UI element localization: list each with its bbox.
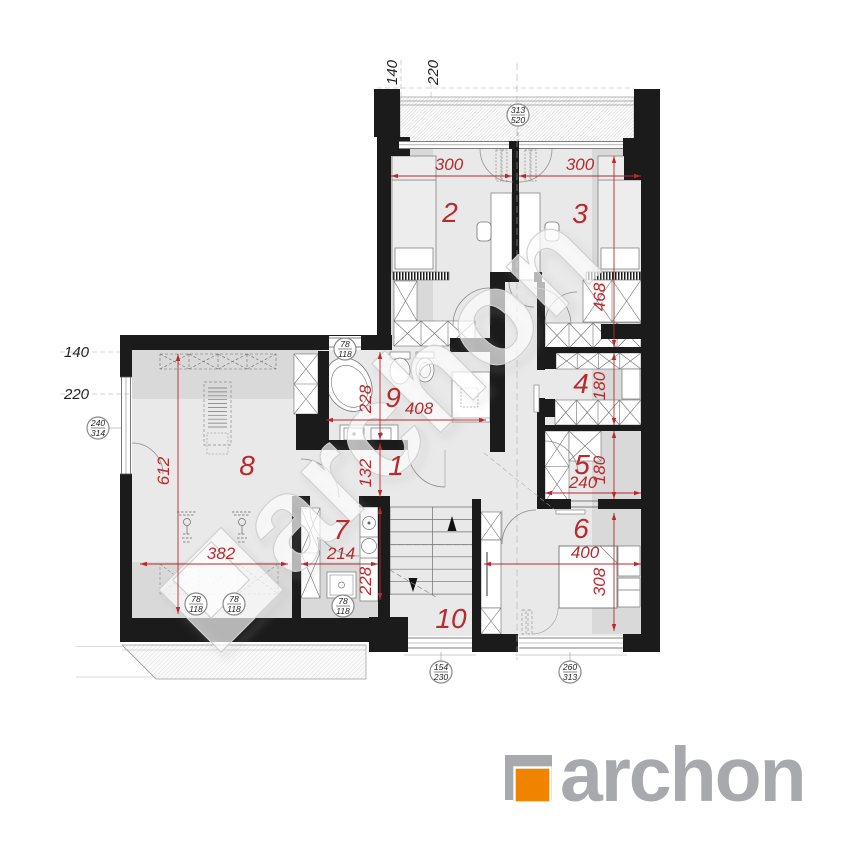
svg-text:78: 78: [191, 594, 201, 604]
svg-text:314: 314: [91, 428, 106, 438]
svg-text:382: 382: [207, 544, 236, 563]
svg-text:228: 228: [356, 384, 375, 414]
svg-text:118: 118: [336, 606, 350, 616]
svg-text:300: 300: [566, 155, 595, 174]
svg-text:300: 300: [435, 155, 464, 174]
svg-text:118: 118: [227, 604, 241, 614]
svg-text:520: 520: [511, 115, 526, 125]
svg-text:3: 3: [572, 198, 588, 229]
svg-text:308: 308: [590, 567, 609, 596]
svg-text:154: 154: [434, 662, 449, 672]
svg-text:5: 5: [574, 449, 590, 480]
svg-text:140: 140: [64, 344, 90, 361]
svg-text:132: 132: [356, 458, 375, 487]
svg-text:408: 408: [405, 399, 434, 418]
svg-text:78: 78: [338, 596, 348, 606]
svg-text:7: 7: [333, 514, 350, 545]
svg-text:4: 4: [573, 368, 589, 399]
svg-text:220: 220: [63, 386, 90, 403]
svg-text:313: 313: [563, 672, 578, 682]
svg-text:9: 9: [385, 382, 401, 413]
svg-text:118: 118: [338, 349, 352, 359]
svg-text:archon: archon: [560, 732, 805, 818]
svg-text:468: 468: [590, 282, 609, 311]
svg-text:240: 240: [90, 418, 106, 428]
svg-text:2: 2: [441, 197, 458, 228]
svg-text:140: 140: [384, 59, 401, 85]
svg-text:214: 214: [326, 544, 355, 563]
svg-text:78: 78: [229, 594, 239, 604]
svg-text:313: 313: [511, 105, 526, 115]
svg-text:260: 260: [562, 662, 578, 672]
svg-text:230: 230: [433, 672, 449, 682]
svg-text:118: 118: [189, 604, 203, 614]
svg-text:1: 1: [388, 450, 404, 481]
svg-text:228: 228: [356, 566, 375, 596]
svg-text:612: 612: [154, 456, 173, 485]
svg-text:8: 8: [239, 450, 255, 481]
svg-text:220: 220: [425, 59, 442, 86]
svg-text:400: 400: [571, 543, 600, 562]
svg-text:6: 6: [573, 513, 589, 544]
svg-text:10: 10: [435, 603, 467, 634]
svg-text:180: 180: [590, 371, 609, 400]
svg-text:78: 78: [340, 339, 350, 349]
